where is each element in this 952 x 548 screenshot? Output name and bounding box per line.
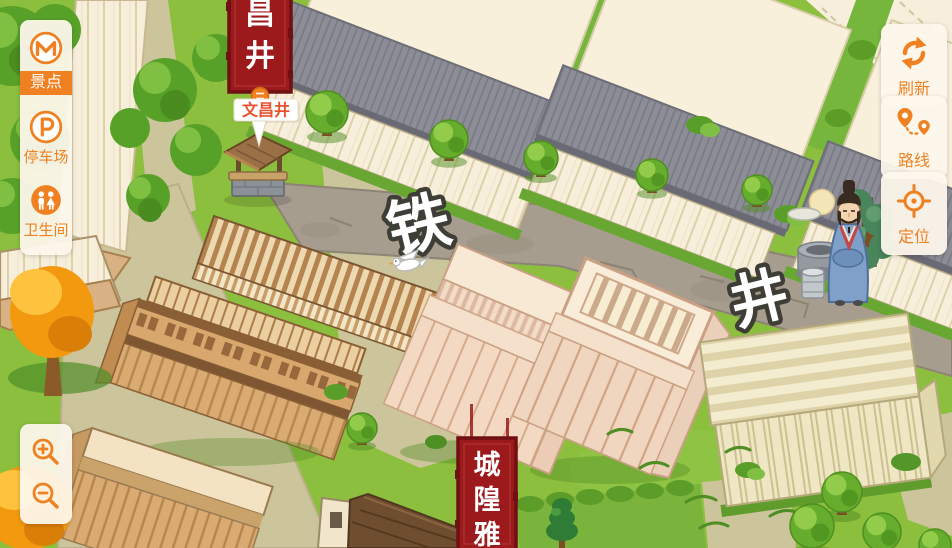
map-canvas[interactable]: 铁 井 [0,0,952,548]
poi-label: 文昌井 [242,101,290,120]
restroom-icon [28,182,64,218]
locate-label: 定位 [898,223,930,247]
route-icon [894,105,934,145]
parking-icon [28,109,64,145]
banner-top-char-1: 昌 [245,0,275,31]
sidebar-item-label: 景点 [20,71,72,95]
banner-bottom-char-2: 隍 [474,485,501,515]
refresh-button[interactable]: 刷新 [881,24,947,107]
route-label: 路线 [898,147,930,171]
sidebar-item-restroom[interactable]: 卫生间 [20,182,72,241]
zoom-out-icon [30,480,62,512]
route-button[interactable]: 路线 [881,96,947,179]
banner-top-char-2: 井 [245,40,275,73]
zoom-out-button[interactable] [24,474,68,518]
zoom-controls [20,424,72,524]
sidebar-item-parking[interactable]: 停车场 [20,109,72,168]
sidebar-item-scenic-spots[interactable]: 景点 [20,30,72,95]
scenic-spots-icon [28,30,64,66]
locate-button[interactable]: 定位 [881,172,947,255]
map-stage: 铁 井 [0,0,952,548]
bucket [802,268,824,298]
sidebar: 景点 停车场 卫生间 [20,20,72,255]
banner-bottom-char-1: 城 [474,450,501,480]
zoom-in-icon [30,436,62,468]
zoom-in-button[interactable] [24,430,68,474]
banner-bottom-char-3: 雅 [474,520,501,548]
banner-top: 昌 井 [226,0,293,92]
sidebar-item-label: 卫生间 [23,221,68,241]
refresh-icon [894,33,934,73]
locate-icon [894,181,934,221]
sidebar-item-label: 停车场 [23,148,68,168]
